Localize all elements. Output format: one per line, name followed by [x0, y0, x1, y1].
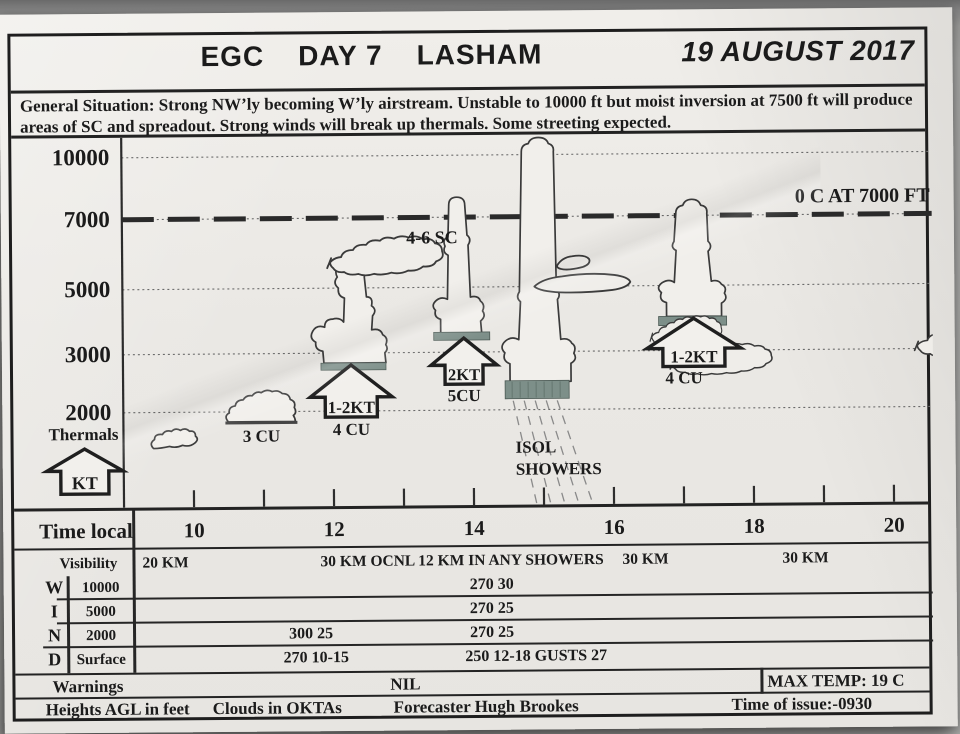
ytick-10000: 10000 — [52, 145, 110, 170]
paper-sheet: EGC DAY 7 LASHAM 19 AUGUST 2017 General … — [0, 7, 958, 733]
general-situation-box: General Situation: Strong NW’ly becoming… — [11, 83, 925, 138]
cumulus-3cu-label: 3 CU — [243, 427, 280, 446]
wind-value-2000: 270 25 — [412, 623, 572, 642]
cumulus-tower-3 — [658, 199, 726, 317]
height-axis — [121, 138, 124, 508]
wind-value-5000: 270 25 — [412, 599, 572, 618]
hour-14: 14 — [444, 516, 504, 541]
height-tick-labels: 10000 7000 5000 3000 2000 — [52, 145, 112, 425]
visibility-value-1: 20 KM — [142, 554, 188, 572]
title-site: LASHAM — [416, 38, 542, 71]
footer-forecaster: Forecaster Hugh Brookes — [394, 696, 579, 717]
hour-16: 16 — [584, 515, 644, 540]
hour-12: 12 — [304, 517, 364, 542]
cumulus-3cu — [226, 390, 296, 422]
title-competition: EGC — [200, 41, 264, 73]
sc-layer-4 — [914, 321, 934, 357]
ytick-3000: 3000 — [65, 342, 111, 367]
hour-20: 20 — [864, 513, 924, 538]
hour-10: 10 — [164, 518, 224, 543]
cumulus-tower-3-label: 4 CU — [665, 368, 702, 387]
cumulus-tower-2-label: 5CU — [448, 386, 481, 405]
wind-value-surface: 250 12-18 GUSTS 27 — [416, 647, 656, 667]
forecast-diagram: 0 C AT 7000 FT 10000 7000 5000 3000 2000… — [11, 131, 934, 508]
wind-level-5000: 5000 — [69, 604, 133, 622]
wind-letter-d: D — [42, 649, 67, 670]
footer-issue-time: Time of issue:-0930 — [732, 694, 873, 715]
cumulus-tower-2 — [432, 197, 484, 333]
wind-early-2000: 300 25 — [251, 625, 371, 644]
warnings-label: Warnings — [42, 677, 133, 698]
ytick-2000: 2000 — [65, 400, 111, 425]
wind-level-2000: 2000 — [69, 628, 133, 646]
time-axis-label: Time local — [39, 519, 133, 545]
stratocumulus-layers — [327, 231, 934, 377]
ytick-7000: 7000 — [64, 207, 110, 232]
page-title: EGC DAY 7 LASHAM — [200, 38, 542, 73]
forecast-date: 19 AUGUST 2017 — [681, 35, 914, 69]
max-temp: MAX TEMP: 19 C — [767, 671, 904, 692]
spreadout-label: 4-6 SC — [406, 227, 458, 247]
cumulus-3cu-baseline — [225, 422, 297, 423]
ytick-5000: 5000 — [64, 277, 110, 302]
cumulus-tower-1-label: 4 CU — [333, 420, 370, 439]
hour-18: 18 — [724, 514, 784, 539]
freezing-level-label: 0 C AT 7000 FT — [795, 184, 931, 207]
visibility-value-4: 30 KM — [782, 549, 828, 567]
wind-value-10000: 270 30 — [412, 575, 572, 594]
thermal-arrow-1-label: 1-2KT — [328, 398, 376, 417]
small-cloud — [151, 429, 197, 449]
wind-level-surface: Surface — [69, 652, 133, 670]
max-temp-cell-divider — [760, 668, 763, 694]
spreadout-lens-small — [557, 256, 590, 270]
footer-clouds-note: Clouds in OKTAs — [213, 698, 342, 719]
thermals-legend-label: Thermals — [48, 425, 118, 445]
warnings-value: NIL — [315, 674, 495, 695]
showers-label-line2: SHOWERS — [516, 459, 602, 479]
thermals-legend-unit: KT — [72, 473, 98, 493]
visibility-value-3: 30 KM — [622, 551, 668, 569]
footer-heights-note: Heights AGL in feet — [46, 699, 190, 720]
showers-label-line1: ISOL — [516, 437, 557, 456]
general-situation-label: General Situation: — [20, 96, 155, 116]
visibility-label: Visibility — [44, 556, 132, 574]
thermal-arrow-3-label: 1-2KT — [670, 347, 718, 366]
visibility-value-2: 30 KM OCNL 12 KM IN ANY SHOWERS — [320, 551, 603, 571]
wind-early-surface: 270 10-15 — [241, 649, 391, 668]
shower-cloud-base — [505, 380, 569, 399]
thermal-arrow-2-label: 2KT — [448, 365, 480, 384]
wind-level-10000: 10000 — [69, 580, 133, 598]
wind-letter-i: I — [42, 601, 67, 622]
wind-letter-w: W — [42, 577, 67, 598]
title-day: DAY 7 — [298, 40, 383, 73]
wind-letter-n: N — [42, 625, 67, 646]
forecast-form: EGC DAY 7 LASHAM 19 AUGUST 2017 General … — [7, 26, 932, 721]
